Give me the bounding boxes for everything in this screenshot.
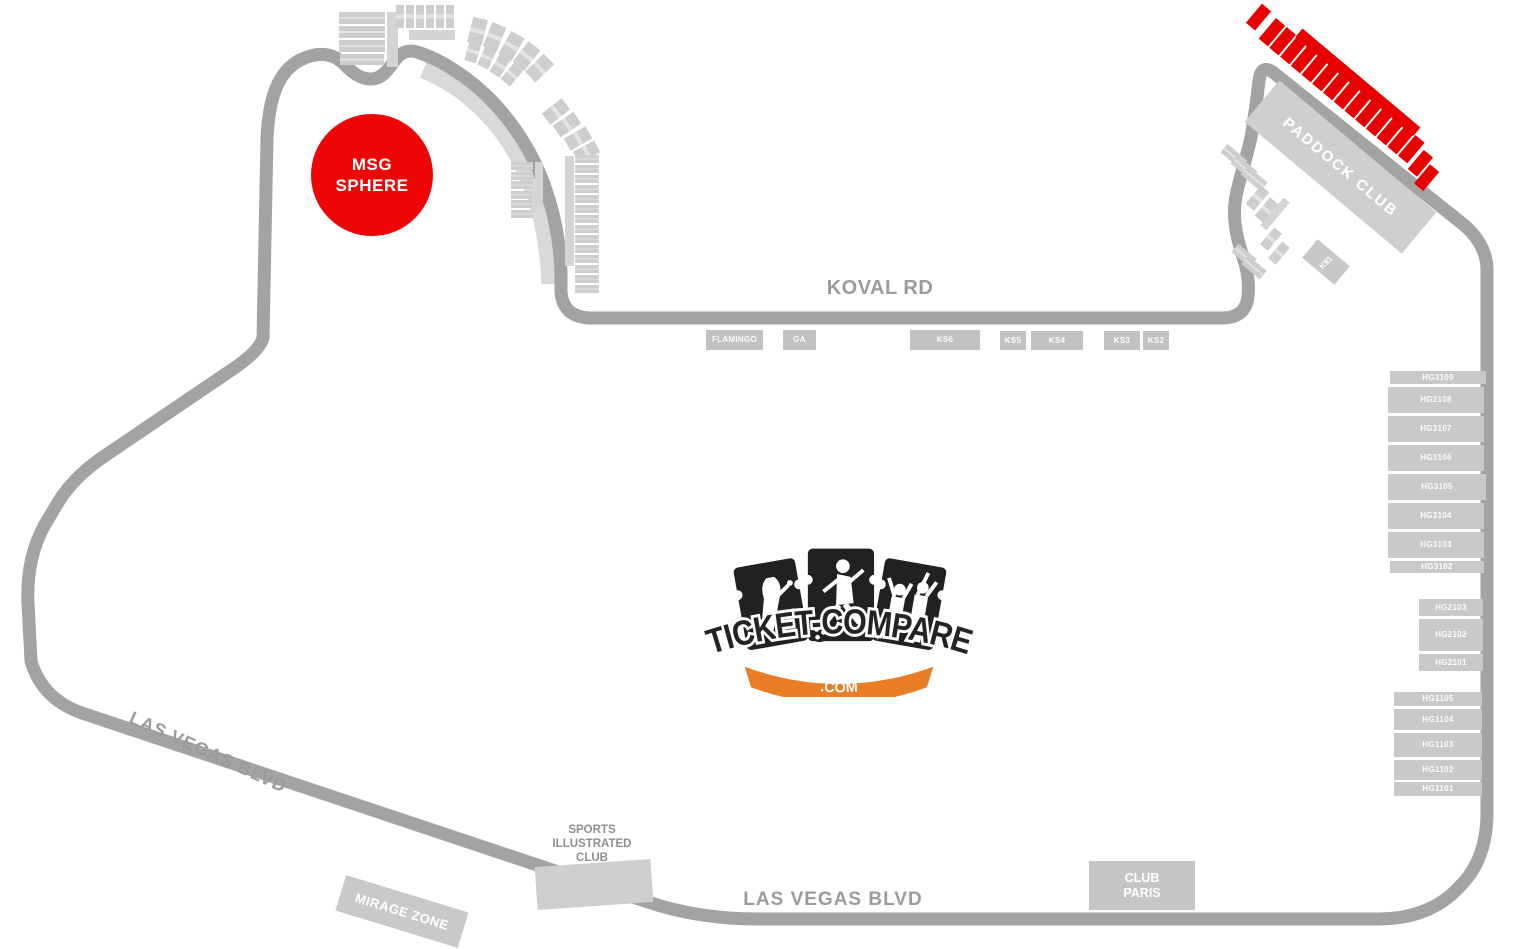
section-flamingo[interactable]: FLAMINGO	[706, 330, 763, 350]
section-ks3[interactable]: KS3	[1104, 331, 1140, 350]
grandstand-micro-section[interactable]	[575, 205, 599, 213]
section-hg2103[interactable]: HG2103	[1419, 599, 1483, 616]
msg-sphere-label-line2: SPHERE	[336, 175, 409, 196]
section-hg3102[interactable]: HG3102	[1390, 561, 1484, 573]
zone-strip	[409, 30, 455, 40]
road-label-koval-rd: KOVAL RD	[780, 277, 980, 300]
grandstand-micro-section[interactable]	[416, 5, 424, 28]
grandstand-micro-section[interactable]	[396, 5, 404, 28]
si-label-line2: ILLUSTRATED	[530, 837, 654, 851]
club-paris-label-line1: CLUB	[1125, 871, 1160, 886]
grandstand-micro-section[interactable]	[511, 191, 533, 199]
section-hg1101[interactable]: HG1101	[1394, 782, 1482, 796]
grandstand-micro-section[interactable]	[575, 195, 599, 203]
section-hg1103[interactable]: HG1103	[1394, 733, 1482, 757]
grandstand-micro-section[interactable]	[339, 40, 385, 52]
grandstand-micro-section[interactable]	[511, 210, 533, 218]
grandstand-micro-section[interactable]	[511, 162, 533, 170]
section-hg1105[interactable]: HG1105	[1394, 692, 1482, 706]
section-hg2101[interactable]: HG2101	[1419, 654, 1483, 671]
grandstand-micro-section[interactable]	[340, 54, 384, 65]
section-ks5[interactable]: KS5	[1000, 331, 1026, 350]
section-hg3109[interactable]: HG3109	[1390, 371, 1486, 384]
grandstand-micro-section[interactable]	[575, 255, 599, 263]
club-paris-label-line2: PARIS	[1123, 886, 1160, 901]
ticket-compare-logo: TICKET-COMPARE .COM	[693, 521, 985, 697]
grandstand-micro-section[interactable]	[436, 5, 444, 28]
grandstand-micro-section[interactable]	[446, 5, 454, 28]
section-hg3104[interactable]: HG3104	[1388, 503, 1484, 529]
si-label-line1: SPORTS	[530, 823, 654, 837]
sports-illustrated-club-label: SPORTS ILLUSTRATED CLUB	[530, 823, 654, 865]
section-ks4[interactable]: KS4	[1031, 331, 1083, 350]
zone-strip	[535, 162, 543, 208]
section-hg2102[interactable]: HG2102	[1419, 619, 1483, 651]
grandstand-micro-section[interactable]	[575, 275, 599, 283]
road-label-las-vegas-blvd-south: LAS VEGAS BLVD	[733, 889, 933, 911]
grandstand-micro-section[interactable]	[406, 5, 414, 28]
grandstand-micro-section[interactable]	[511, 200, 533, 208]
section-hg3107[interactable]: HG3107	[1388, 416, 1484, 442]
grandstand-micro-section[interactable]	[575, 265, 599, 273]
grandstand-micro-section[interactable]	[575, 175, 599, 183]
section-hg3106[interactable]: HG3106	[1388, 445, 1484, 471]
section-sports-illustrated-club[interactable]	[535, 859, 654, 910]
section-ga[interactable]: GA	[783, 330, 816, 350]
section-club-paris[interactable]: CLUB PARIS	[1089, 861, 1195, 910]
section-hg1102[interactable]: HG1102	[1394, 760, 1482, 780]
section-ks6[interactable]: KS6	[910, 330, 980, 350]
grandstand-micro-section[interactable]	[339, 12, 385, 24]
grandstand-micro-section[interactable]	[511, 172, 533, 180]
grandstand-micro-section[interactable]	[575, 245, 599, 253]
section-ks2[interactable]: KS2	[1143, 331, 1169, 350]
zone-strip	[565, 156, 574, 266]
grandstand-micro-section[interactable]	[575, 225, 599, 233]
section-hg1104[interactable]: HG1104	[1394, 709, 1482, 730]
section-k91-label: K91	[1318, 254, 1335, 271]
circuit-seating-map: MSG SPHERE KOVAL RD LAS VEGAS BLVD LAS V…	[0, 0, 1521, 949]
grandstand-micro-section[interactable]	[575, 235, 599, 243]
grandstand-micro-section[interactable]	[575, 285, 599, 293]
grandstand-micro-section[interactable]	[426, 5, 434, 28]
msg-sphere-landmark[interactable]: MSG SPHERE	[311, 114, 433, 236]
section-hg3105[interactable]: HG3105	[1388, 474, 1486, 500]
logo-tld: .COM	[820, 679, 859, 696]
msg-sphere-label-line1: MSG	[352, 154, 392, 175]
grandstand-micro-section[interactable]	[339, 26, 385, 38]
grandstand-micro-section[interactable]	[575, 155, 599, 163]
section-hg3108[interactable]: HG3108	[1388, 387, 1484, 413]
grandstand-micro-section[interactable]	[575, 165, 599, 173]
grandstand-micro-section[interactable]	[575, 215, 599, 223]
grandstand-micro-section[interactable]	[511, 181, 533, 189]
section-hg3103[interactable]: HG3103	[1388, 532, 1484, 558]
grandstand-micro-section[interactable]	[575, 185, 599, 193]
race-track-outline	[28, 51, 1487, 919]
